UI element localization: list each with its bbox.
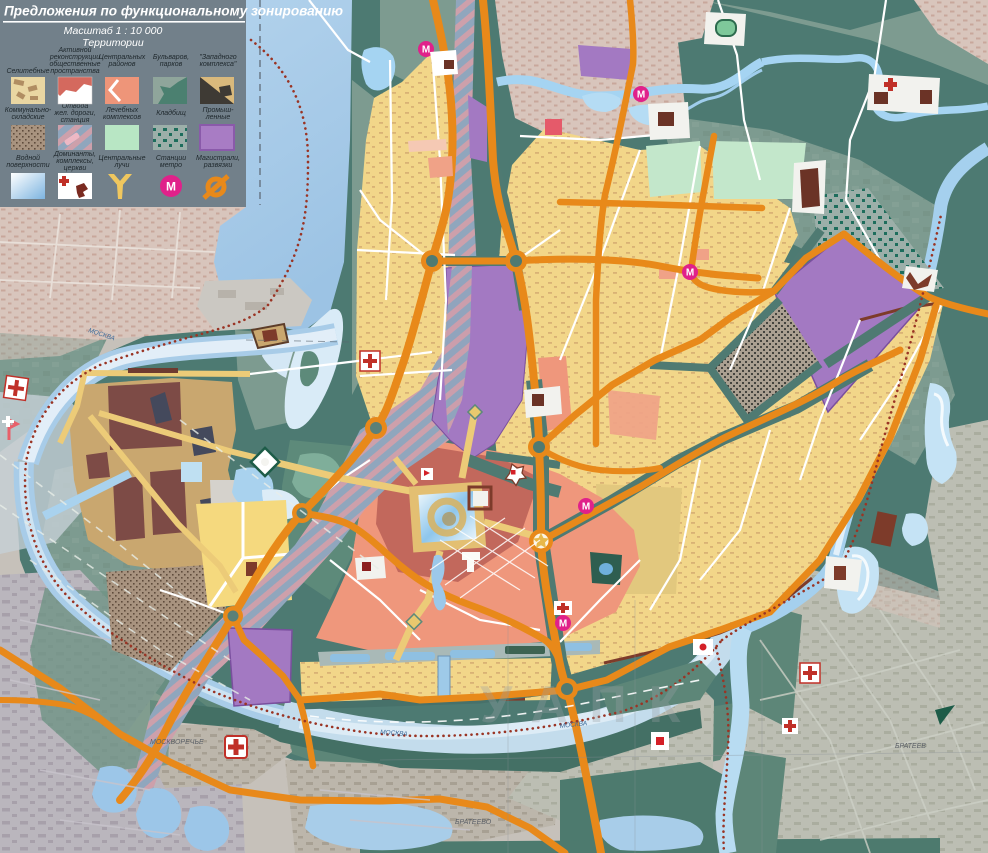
svg-text:M: M bbox=[582, 502, 590, 513]
svg-text:БРАТЕЕВ: БРАТЕЕВ bbox=[895, 743, 926, 750]
svg-text:метро: метро bbox=[160, 162, 182, 169]
svg-text:комплексы,: комплексы, bbox=[56, 158, 94, 165]
svg-text:жел. дороги,: жел. дороги, bbox=[53, 109, 95, 117]
svg-text:общественные: общественные bbox=[49, 60, 100, 68]
svg-text:M: M bbox=[686, 268, 694, 279]
svg-text:Центральные: Центральные bbox=[99, 155, 146, 162]
svg-text:парков: парков bbox=[160, 61, 183, 68]
svg-text:M: M bbox=[422, 45, 430, 56]
svg-text:Станции: Станции bbox=[156, 155, 186, 162]
svg-text:комплекса": комплекса" bbox=[200, 61, 237, 68]
svg-text:БРАТЕЕВО: БРАТЕЕВО bbox=[455, 819, 492, 826]
svg-text:развязки: развязки bbox=[203, 162, 233, 169]
svg-text:Центральных: Центральных bbox=[99, 54, 146, 61]
svg-text:Промыш-: Промыш- bbox=[203, 107, 235, 114]
svg-text:Водной: Водной bbox=[16, 154, 40, 162]
svg-text:поверхности: поверхности bbox=[6, 162, 49, 169]
svg-text:M: M bbox=[166, 180, 176, 194]
svg-text:Коммунально-: Коммунально- bbox=[5, 107, 52, 114]
svg-text:МОСКВОРЕЧЬЕ: МОСКВОРЕЧЬЕ bbox=[150, 739, 204, 746]
svg-text:Предложения по функциональному: Предложения по функциональному зонирован… bbox=[4, 4, 343, 19]
svg-text:районов: районов bbox=[108, 60, 136, 68]
svg-text:Лечебных: Лечебных bbox=[105, 106, 139, 114]
svg-text:складские: складские bbox=[11, 113, 44, 121]
svg-text:Бульваров,: Бульваров, bbox=[153, 54, 189, 61]
svg-text:реконструкции: реконструкции bbox=[49, 54, 100, 61]
svg-text:"Западного: "Западного bbox=[199, 53, 236, 61]
svg-text:M: M bbox=[637, 90, 645, 101]
svg-text:Селитебные: Селитебные bbox=[6, 67, 49, 75]
svg-text:ленные: ленные bbox=[205, 114, 231, 121]
svg-text:Магистрали,: Магистрали, bbox=[196, 155, 240, 162]
svg-text:УАПК: УАПК bbox=[480, 676, 702, 734]
svg-text:церкви: церкви bbox=[64, 165, 87, 172]
svg-text:Активной: Активной bbox=[57, 46, 91, 54]
svg-text:станция: станция bbox=[61, 117, 90, 124]
svg-text:Доминанты,: Доминанты, bbox=[53, 151, 96, 158]
svg-text:комплексов: комплексов bbox=[103, 114, 141, 121]
svg-text:пространства: пространства bbox=[50, 68, 99, 75]
svg-text:M: M bbox=[559, 619, 567, 630]
svg-text:Масштаб 1 : 10 000: Масштаб 1 : 10 000 bbox=[64, 25, 163, 37]
svg-text:лучи: лучи bbox=[114, 162, 130, 169]
svg-text:Кладбищ: Кладбищ bbox=[156, 109, 186, 117]
